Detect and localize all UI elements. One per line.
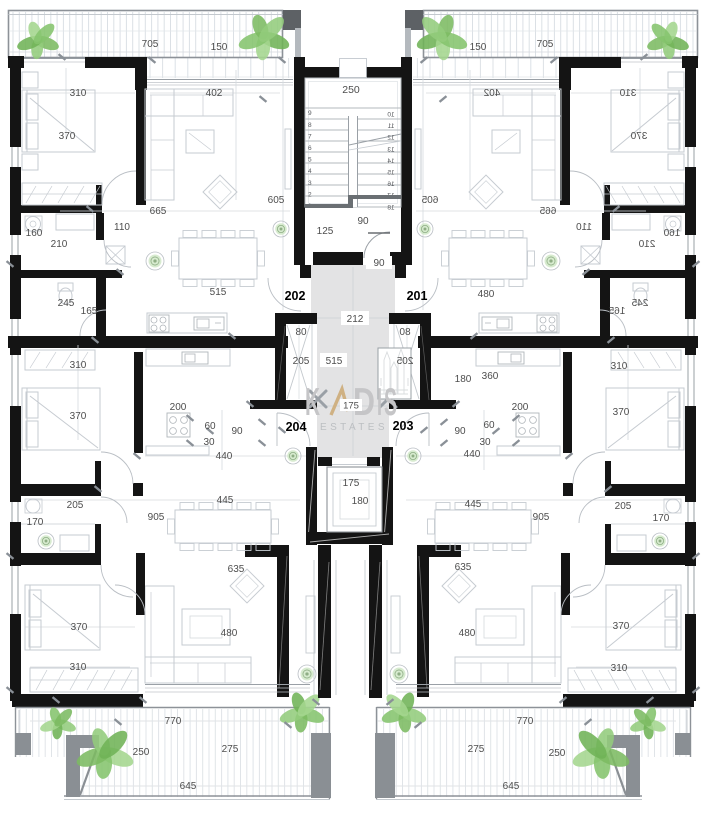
svg-text:10: 10 <box>387 112 395 119</box>
svg-text:770: 770 <box>165 716 182 727</box>
svg-text:250: 250 <box>133 747 150 758</box>
svg-text:480: 480 <box>478 289 495 300</box>
svg-text:205: 205 <box>615 501 632 512</box>
svg-text:ESTATES: ESTATES <box>320 422 388 433</box>
svg-text:90: 90 <box>357 216 369 227</box>
svg-text:905: 905 <box>533 512 550 523</box>
svg-text:370: 370 <box>59 131 76 142</box>
svg-text:645: 645 <box>180 781 197 792</box>
svg-text:515: 515 <box>210 287 227 298</box>
svg-text:160: 160 <box>663 228 680 239</box>
svg-text:7: 7 <box>308 133 312 140</box>
svg-text:370: 370 <box>613 407 630 418</box>
svg-text:11: 11 <box>387 123 394 130</box>
svg-text:60: 60 <box>483 420 495 431</box>
svg-text:200: 200 <box>512 402 529 413</box>
svg-text:180: 180 <box>455 374 472 385</box>
svg-text:402: 402 <box>206 88 223 99</box>
svg-text:310: 310 <box>611 663 628 674</box>
svg-text:310: 310 <box>70 360 87 371</box>
svg-text:212: 212 <box>347 314 364 325</box>
svg-text:205: 205 <box>293 356 310 367</box>
svg-text:16: 16 <box>387 181 395 188</box>
svg-text:370: 370 <box>630 131 647 142</box>
svg-text:K: K <box>305 381 320 424</box>
svg-text:15: 15 <box>387 170 395 177</box>
svg-text:205: 205 <box>396 356 413 367</box>
svg-text:480: 480 <box>221 628 238 639</box>
svg-text:60: 60 <box>204 421 216 432</box>
svg-text:3: 3 <box>308 180 312 187</box>
svg-text:13: 13 <box>387 146 395 153</box>
svg-text:210: 210 <box>51 239 68 250</box>
svg-text:440: 440 <box>216 451 233 462</box>
svg-text:200: 200 <box>170 402 187 413</box>
svg-text:370: 370 <box>613 621 630 632</box>
svg-text:360: 360 <box>482 371 499 382</box>
svg-text:5: 5 <box>308 157 312 164</box>
svg-text:635: 635 <box>455 562 472 573</box>
svg-text:175: 175 <box>343 478 360 489</box>
svg-text:30: 30 <box>479 437 491 448</box>
svg-text:515: 515 <box>326 356 343 367</box>
svg-text:203: 203 <box>393 419 414 433</box>
svg-text:170: 170 <box>27 517 44 528</box>
svg-text:90: 90 <box>231 426 243 437</box>
svg-text:905: 905 <box>148 512 165 523</box>
svg-text:480: 480 <box>459 628 476 639</box>
svg-text:110: 110 <box>114 222 130 233</box>
svg-text:180: 180 <box>352 496 369 507</box>
svg-text:665: 665 <box>539 206 556 217</box>
svg-text:445: 445 <box>465 499 482 510</box>
svg-text:370: 370 <box>70 411 87 422</box>
svg-text:2: 2 <box>308 191 312 198</box>
svg-text:635: 635 <box>228 564 245 575</box>
svg-text:6: 6 <box>308 145 312 152</box>
svg-text:310: 310 <box>70 88 87 99</box>
svg-text:275: 275 <box>468 744 485 755</box>
svg-text:204: 204 <box>286 420 307 434</box>
svg-text:9: 9 <box>308 110 312 117</box>
svg-text:210: 210 <box>638 239 655 250</box>
svg-text:125: 125 <box>317 226 334 237</box>
svg-text:250: 250 <box>342 84 360 96</box>
svg-text:202: 202 <box>285 289 306 303</box>
svg-text:605: 605 <box>268 195 285 206</box>
svg-text:705: 705 <box>142 39 159 50</box>
svg-text:90: 90 <box>454 426 466 437</box>
svg-text:245: 245 <box>58 298 75 309</box>
svg-text:12: 12 <box>387 135 395 142</box>
svg-text:645: 645 <box>503 781 520 792</box>
svg-text:165: 165 <box>81 306 98 317</box>
svg-text:665: 665 <box>150 206 167 217</box>
svg-text:250: 250 <box>549 748 566 759</box>
svg-text:30: 30 <box>203 437 215 448</box>
svg-text:80: 80 <box>399 327 411 338</box>
svg-text:310: 310 <box>70 662 87 673</box>
svg-text:310: 310 <box>611 361 628 372</box>
svg-text:370: 370 <box>71 622 88 633</box>
svg-text:18: 18 <box>387 204 395 211</box>
svg-text:175: 175 <box>343 401 359 412</box>
svg-text:440: 440 <box>464 449 481 460</box>
svg-text:I: I <box>377 381 382 424</box>
svg-text:80: 80 <box>295 327 307 338</box>
svg-text:770: 770 <box>517 716 534 727</box>
svg-text:150: 150 <box>470 42 487 53</box>
svg-text:14: 14 <box>387 158 395 165</box>
svg-text:705: 705 <box>537 39 554 50</box>
svg-text:160: 160 <box>26 228 43 239</box>
svg-text:605: 605 <box>421 195 438 206</box>
svg-text:170: 170 <box>653 513 670 524</box>
svg-text:245: 245 <box>631 298 648 309</box>
svg-text:150: 150 <box>211 42 228 53</box>
svg-text:110: 110 <box>576 222 592 233</box>
svg-text:402: 402 <box>483 88 500 99</box>
svg-text:8: 8 <box>308 122 312 129</box>
svg-text:205: 205 <box>67 500 84 511</box>
svg-text:445: 445 <box>217 495 234 506</box>
svg-text:4: 4 <box>308 168 312 175</box>
svg-text:90: 90 <box>373 258 385 269</box>
svg-text:165: 165 <box>608 306 625 317</box>
svg-text:310: 310 <box>619 88 636 99</box>
svg-text:S: S <box>384 381 397 424</box>
svg-text:201: 201 <box>407 289 428 303</box>
svg-text:275: 275 <box>222 744 239 755</box>
